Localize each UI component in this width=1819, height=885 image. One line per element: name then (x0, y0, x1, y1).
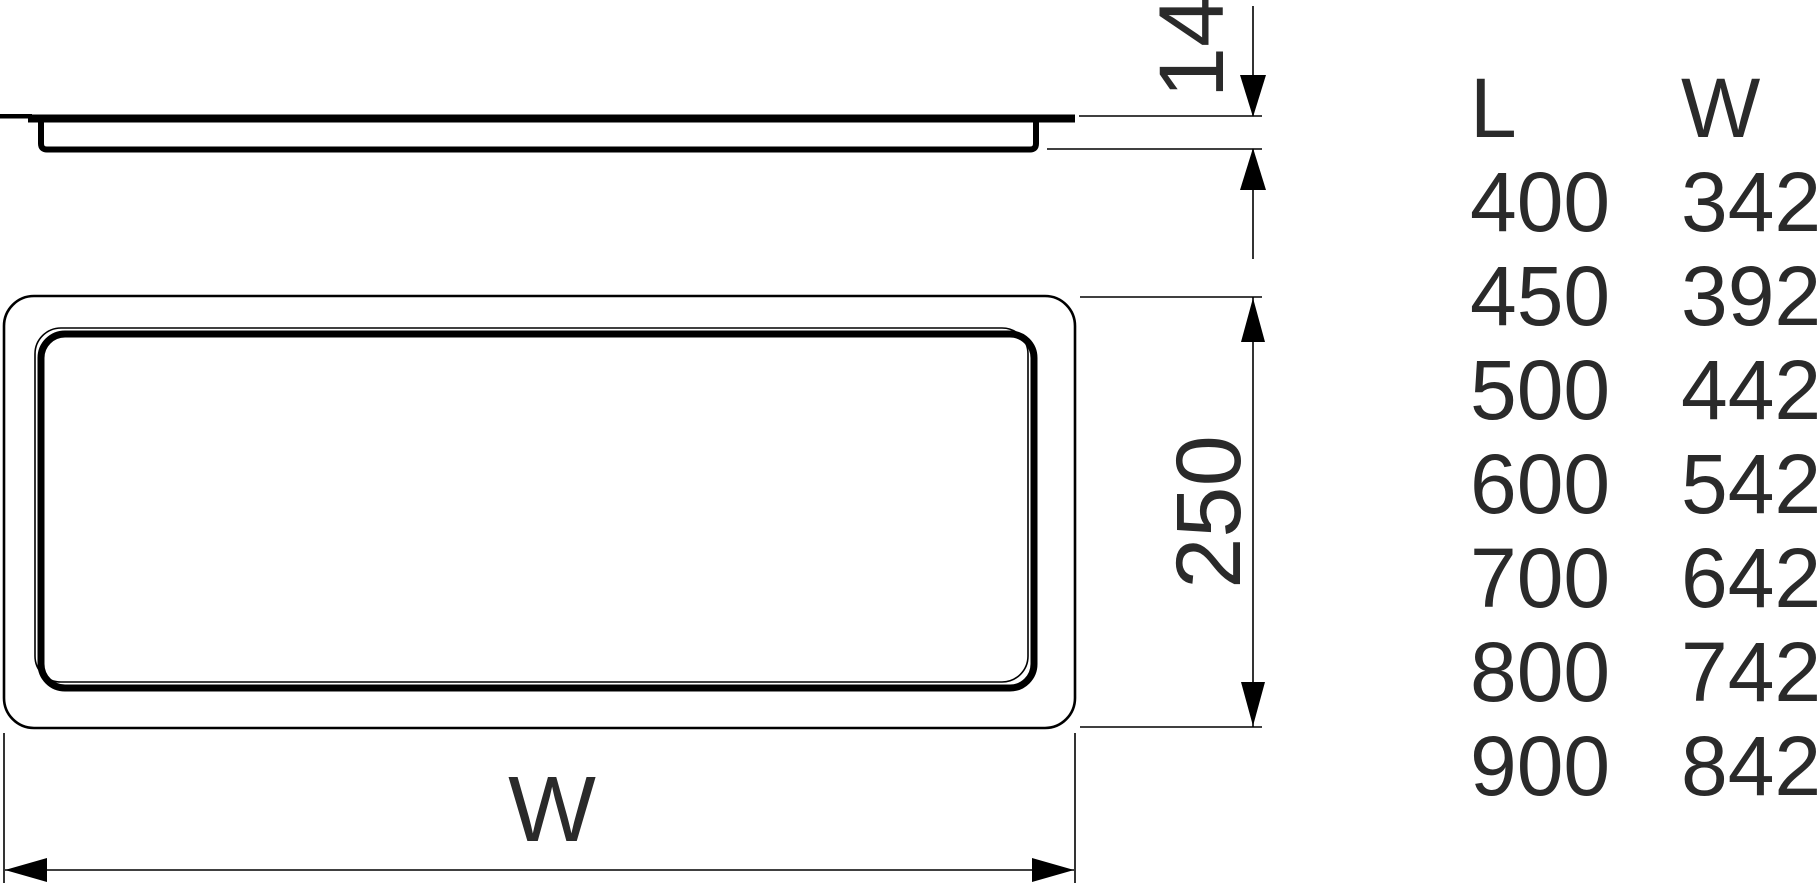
side-view (0, 114, 1075, 150)
arrow-down-icon (1241, 682, 1265, 726)
thickness-dimension-label: 14 (1141, 0, 1243, 98)
table-cell-l: 500 (1470, 343, 1610, 437)
top-view (4, 296, 1075, 728)
top-view-outer-edge (4, 296, 1075, 728)
table-cell-w: 542 (1681, 437, 1819, 531)
table-cell-l: 400 (1470, 155, 1610, 249)
table-cell-w: 442 (1681, 343, 1819, 437)
table-header-w: W (1681, 61, 1760, 155)
table-cell-w: 642 (1681, 531, 1819, 625)
arrow-right-icon (1032, 858, 1074, 882)
table-row: 400 342 (1470, 155, 1819, 249)
dimension-depth: 250 (1080, 297, 1265, 727)
table-cell-l: 600 (1470, 437, 1610, 531)
table-row: 450 392 (1470, 249, 1819, 343)
depth-dimension-label: 250 (1158, 435, 1260, 589)
technical-drawing-page: 14 250 W L W (0, 0, 1819, 885)
table-cell-w: 342 (1681, 155, 1819, 249)
table-row: 900 842 (1470, 719, 1819, 813)
side-view-rim-lip (0, 114, 32, 119)
dimension-drawing: 14 250 W L W (0, 0, 1819, 885)
table-cell-l: 800 (1470, 625, 1610, 719)
table-row: 500 442 (1470, 343, 1819, 437)
table-row: 700 642 (1470, 531, 1819, 625)
table-header-l: L (1470, 61, 1517, 155)
top-view-inner-edge-contour (35, 328, 1028, 682)
table-cell-l: 900 (1470, 719, 1610, 813)
arrow-up-icon (1241, 298, 1265, 342)
size-table: L W 400 342 450 392 500 442 600 542 700 … (1470, 61, 1819, 813)
table-cell-l: 450 (1470, 249, 1610, 343)
table-cell-w: 392 (1681, 249, 1819, 343)
arrow-down-icon (1240, 75, 1266, 117)
arrow-left-icon (5, 858, 47, 882)
top-view-inner-edge (41, 334, 1034, 688)
dimension-thickness: 14 (1047, 0, 1266, 259)
table-row: 800 742 (1470, 625, 1819, 719)
side-view-body-channel (41, 122, 1036, 150)
table-row: 600 542 (1470, 437, 1819, 531)
table-cell-w: 842 (1681, 719, 1819, 813)
dimension-width: W (4, 733, 1075, 883)
side-view-rim (28, 115, 1075, 123)
width-dimension-label: W (508, 757, 596, 861)
table-cell-w: 742 (1681, 625, 1819, 719)
table-cell-l: 700 (1470, 531, 1610, 625)
arrow-up-icon (1240, 148, 1266, 190)
